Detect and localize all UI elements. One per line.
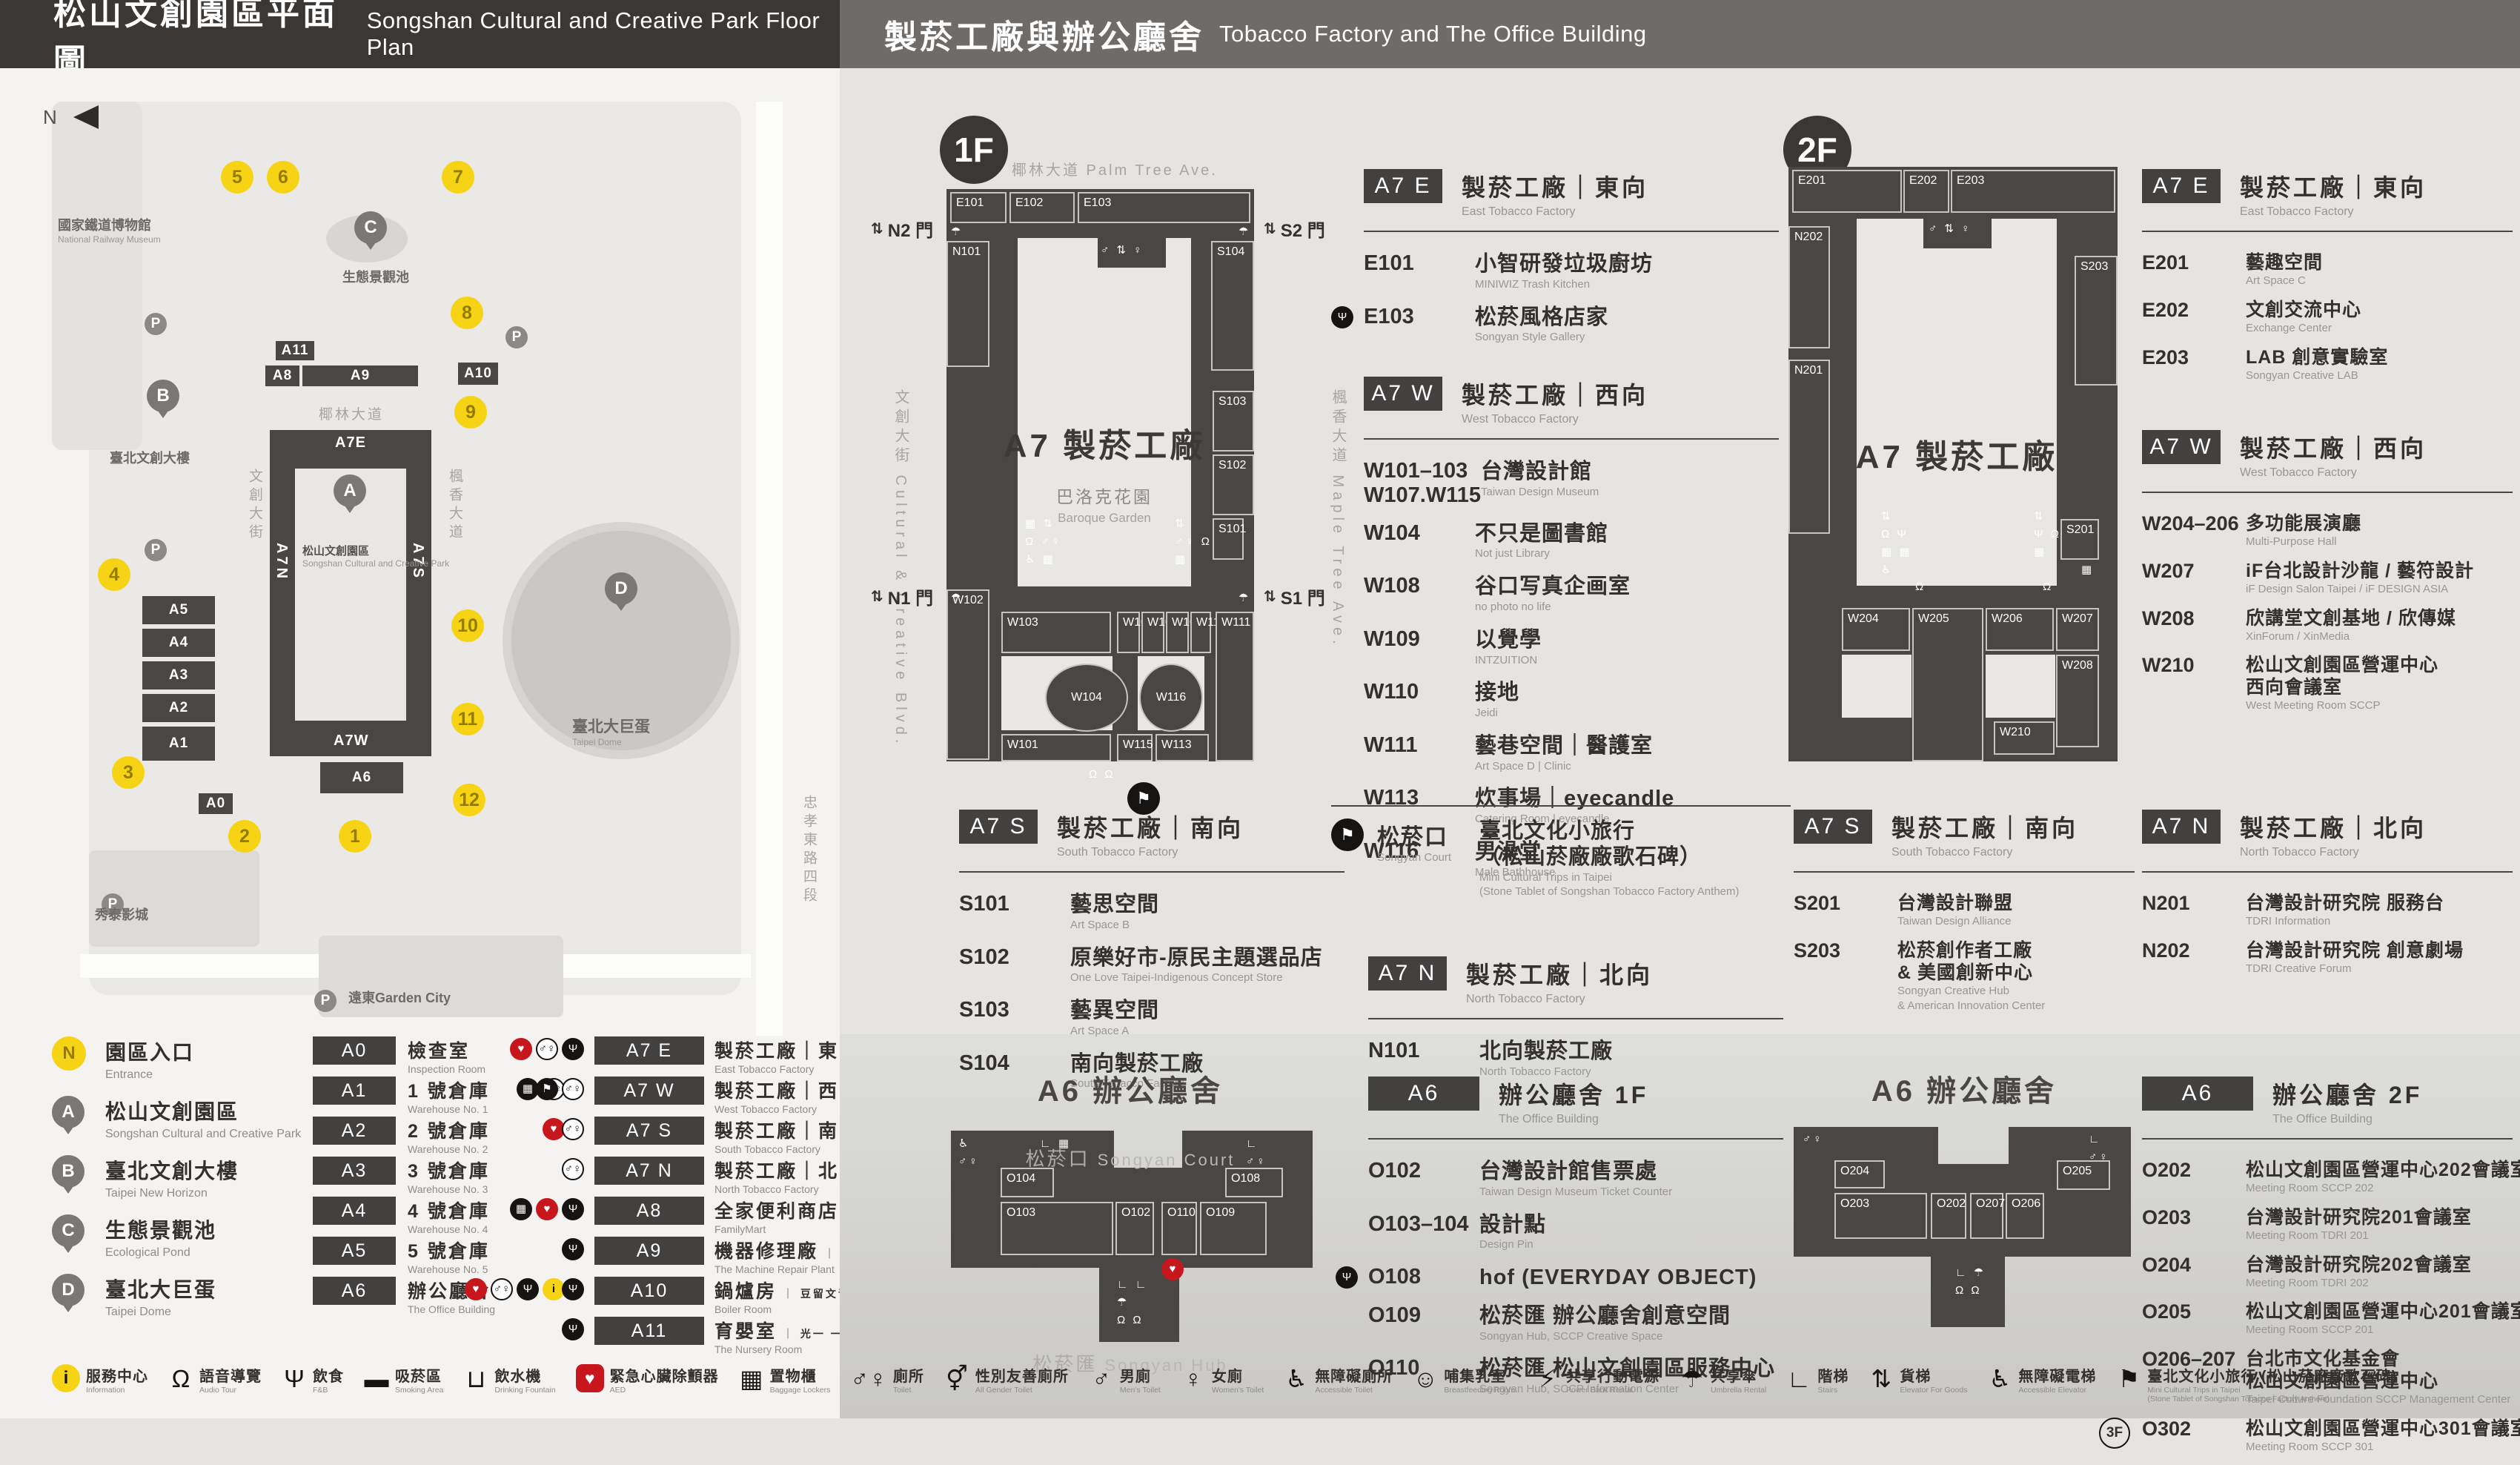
- room-code: N101: [1368, 1039, 1479, 1063]
- divider: [959, 871, 1344, 873]
- space-name: 台灣設計研究院 服務台 TDRI Information: [2246, 892, 2444, 929]
- directory-entry[interactable]: Ψ E103 松菸風格店家 Songyan Style Gallery: [1364, 305, 1779, 345]
- road-right: [756, 102, 783, 1036]
- room-code: W101–103 W107.W115: [1364, 459, 1481, 509]
- space-name: 設計點 Design Pin: [1479, 1212, 1546, 1253]
- entrance-number-marker[interactable]: 2: [228, 820, 261, 853]
- left-header: 松山文創園區平面圖 Songshan Cultural and Creative…: [0, 0, 840, 68]
- section-badge: A6: [2142, 1077, 2253, 1111]
- divider: [1368, 1138, 1783, 1140]
- entrance-number-marker[interactable]: 5: [221, 161, 253, 194]
- aed-icon: ♥: [536, 1198, 558, 1220]
- map-legend: N 園區入口Entrance A 松山文創園區Songshan Cultural…: [52, 1036, 840, 1370]
- facility-icon: Ω: [168, 1364, 193, 1394]
- map-building[interactable]: A4: [142, 629, 215, 657]
- map-pin[interactable]: C: [354, 211, 387, 244]
- facility-legend-item: ⚥ 性別友善廁所 All Gender Toilet: [944, 1364, 1069, 1395]
- divider: [2142, 492, 2513, 493]
- facility-legend-item: ⊔ 飲水機 Drinking Fountain: [463, 1364, 555, 1395]
- divider: [1331, 805, 1791, 807]
- directory-entry[interactable]: W109 以覺學 INTZUITION: [1364, 627, 1779, 668]
- map-poi-label: 國家鐵道博物館 National Railway Museum: [58, 215, 161, 245]
- row-icons: Ψ: [497, 1277, 584, 1300]
- facility-icon: ▦: [739, 1364, 764, 1394]
- directory-entry[interactable]: N202 台灣設計研究院 創意劇場 TDRI Creative Forum: [2142, 939, 2513, 976]
- restaurant-icon: Ψ: [562, 1038, 584, 1060]
- facility-legend-item: ♂ 男廁 Men's Toilet: [1089, 1364, 1161, 1395]
- directory-entry[interactable]: N201 台灣設計研究院 服務台 TDRI Information: [2142, 892, 2513, 929]
- facility-icons: ⇅ Ψ Ω ▦: [2034, 508, 2061, 561]
- plan-room[interactable]: W104: [1045, 664, 1128, 732]
- aed-icon: ♥: [465, 1278, 487, 1300]
- plan-room[interactable]: O110: [1161, 1202, 1197, 1255]
- section-badge: A7 W: [2142, 430, 2221, 464]
- room-code: E202: [2142, 299, 2246, 322]
- street-maple-ave: 楓香大道 Maple Tree Ave.: [1327, 389, 1349, 649]
- plan-room[interactable]: S102: [1213, 454, 1254, 515]
- directory-entry[interactable]: Ψ O108 hof (EVERYDAY OBJECT): [1368, 1265, 1783, 1291]
- directory-entry[interactable]: E101 小智研發垃圾廚坊 MINIWIZ Trash Kitchen: [1364, 251, 1779, 292]
- entrance-number-marker[interactable]: 8: [451, 297, 483, 329]
- legend-factory-row: ♂♀ A7 N 製菸工廠｜北向 North Tobacco Factory: [497, 1157, 840, 1193]
- space-name: 台灣設計館 Taiwan Design Museum: [1481, 459, 1599, 500]
- map-pin[interactable]: D: [605, 572, 637, 605]
- map-building[interactable]: A1: [142, 727, 215, 761]
- facility-icon: ♂♀: [850, 1364, 887, 1394]
- directory-entry[interactable]: W101–103 W107.W115 台灣設計館 Taiwan Design M…: [1364, 459, 1779, 509]
- room-code: N202: [2142, 939, 2246, 962]
- facility-legend-item: ☺ 哺集乳室 Breastfeeding Room: [1413, 1364, 1515, 1395]
- plan-room[interactable]: E203: [1951, 170, 2115, 213]
- directory-entry[interactable]: W208 欣講堂文創基地 / 欣傳媒 XinForum / XinMedia: [2142, 607, 2513, 644]
- light-patch-w206: [1986, 655, 2055, 718]
- directory-entry[interactable]: O109 松菸匯 辦公廳舍創意空間 Songyan Hub, SCCP Crea…: [1368, 1303, 1783, 1344]
- facility-icon: ⚥: [944, 1364, 969, 1394]
- plan-room[interactable]: W108: [1141, 612, 1164, 653]
- compass-north: N: [43, 105, 99, 129]
- space-name: 文創交流中心 Exchange Center: [2246, 299, 2361, 336]
- facility-icon: ♂: [1089, 1364, 1114, 1394]
- directory-entry[interactable]: S203 松菸創作者工廠 & 美國創新中心 Songyan Creative H…: [1794, 939, 2135, 1013]
- zone-badge: A0: [313, 1036, 396, 1065]
- facility-icons: ▦: [2081, 561, 2094, 579]
- park-map-panel: A7E A7W A7N A7S 松山文創園區Songshan Cultural …: [0, 68, 840, 1418]
- space-name: 台灣設計研究院 創意劇場 TDRI Creative Forum: [2246, 939, 2464, 976]
- row-icons: ♥♂♀Ψ: [497, 1036, 584, 1060]
- section-a7s-2f: A7 S 製菸工廠｜南向 South Tobacco Factory S201 …: [1794, 810, 2135, 1023]
- plan-room[interactable]: E102: [1009, 192, 1075, 223]
- facility-icon: ♿: [1987, 1364, 2012, 1394]
- facility-icons: ▦ ⇅ Ω ♂♀ ♿ ▦: [1025, 515, 1062, 569]
- legend-factory-row: ▦♥Ψ A8 全家便利商店 FamilyMart: [497, 1197, 840, 1233]
- facility-icons: ⇅ ♂♀ Ω ▦: [1175, 515, 1212, 569]
- map-poi-label: 椰林大道: [319, 403, 384, 423]
- plan-room[interactable]: W110: [1190, 612, 1211, 653]
- section-title-zh: 製菸工廠｜西向: [2240, 430, 2427, 464]
- space-name: LAB 創意實驗室 Songyan Creative LAB: [2246, 346, 2388, 383]
- facility-icons: ☂: [951, 223, 963, 241]
- space-name: 松山文創園區營運中心301會議室 Meeting Room SCCP 301: [2246, 1418, 2520, 1455]
- zone-badge: A2: [313, 1117, 396, 1145]
- plan-room[interactable]: W207: [2056, 608, 2099, 651]
- room-code: W207: [2142, 560, 2246, 583]
- plan-room[interactable]: W109: [1166, 612, 1189, 653]
- aed-icon: ♥: [510, 1038, 532, 1060]
- room-code: W204–206: [2142, 512, 2246, 535]
- space-name: 台灣設計聯盟 Taiwan Design Alliance: [1897, 892, 2013, 929]
- space-name: 藝思空間 Art Space B: [1070, 892, 1159, 933]
- zone-badge: A11: [594, 1317, 704, 1345]
- plan-room[interactable]: W113: [1155, 734, 1209, 761]
- plan-room[interactable]: W116: [1139, 664, 1203, 732]
- zone-badge: A7 E: [594, 1036, 704, 1065]
- plan-gate[interactable]: ⇅ S2 門: [1264, 216, 1325, 242]
- zone-badge: A9: [594, 1237, 704, 1265]
- plan-room[interactable]: W206: [1986, 608, 2054, 651]
- parking-icon: P: [505, 326, 528, 348]
- facility-legend-item: ▦ 置物櫃 Baggage Lockers: [739, 1364, 831, 1395]
- section-a6-2f: A6 辦公廳舍 2F The Office Building O202 松山文創…: [2142, 1077, 2513, 1465]
- plan-room[interactable]: S103: [1213, 391, 1254, 452]
- divider: [1368, 1018, 1783, 1019]
- right-title-zh: 製菸工廠與辦公廳舍: [884, 10, 1204, 58]
- legend-marker: C: [52, 1214, 86, 1247]
- section-badge: A7 E: [1364, 169, 1442, 203]
- directory-entry[interactable]: W104 不只是圖書館 Not just Library: [1364, 521, 1779, 562]
- walking-person-icon: ⚑: [1331, 819, 1364, 851]
- facility-icon: ⚡: [1535, 1364, 1560, 1394]
- room-code: E101: [1364, 251, 1475, 276]
- parking-icon: P: [314, 990, 336, 1012]
- facility-icons: Ω Ω: [1089, 766, 1115, 784]
- space-name: 北向製菸工廠 North Tobacco Factory: [1479, 1039, 1613, 1079]
- street-cultural-blvd: 文創大街 Cultural & Creative Blvd.: [890, 389, 912, 747]
- directory-entry[interactable]: W207 iF台北設計沙龍 / 藝符設計 iF Design Salon Tai…: [2142, 560, 2513, 597]
- section-title-zh: 製菸工廠｜西向: [1462, 377, 1648, 411]
- entrance-marker-icon: N: [52, 1036, 86, 1071]
- facility-icons: ♂♀: [1803, 1131, 1824, 1148]
- directory-entry[interactable]: E203 LAB 創意實驗室 Songyan Creative LAB: [2142, 346, 2513, 383]
- directory-entry[interactable]: O204 台灣設計研究院202會議室 Meeting Room TDRI 202: [2142, 1254, 2513, 1291]
- updown-arrows-icon: ⇅: [1264, 587, 1276, 606]
- facility-icon: ♀: [1181, 1364, 1206, 1394]
- legend-place-row: B 臺北文創大樓Taipei New Horizon: [52, 1155, 304, 1201]
- plan-room[interactable]: E201: [1792, 170, 1902, 213]
- plan-room[interactable]: O206: [2006, 1193, 2044, 1239]
- room-code: O103–104: [1368, 1212, 1479, 1237]
- plan-room[interactable]: S104: [1211, 241, 1254, 371]
- zone-badge: A1: [313, 1077, 396, 1105]
- plan-room[interactable]: O204: [1834, 1160, 1885, 1188]
- map-building[interactable]: A8: [265, 366, 299, 386]
- plan-room[interactable]: W111: [1216, 612, 1254, 761]
- directory-entry[interactable]: O103–104 設計點 Design Pin: [1368, 1212, 1783, 1253]
- facility-icons: ♂ ⇅ ♀: [1101, 242, 1144, 259]
- plan-room[interactable]: O104: [1001, 1168, 1054, 1197]
- plan-room[interactable]: N202: [1788, 226, 1830, 348]
- songyan-item-zh: 臺北文化小旅行: [1479, 819, 1740, 844]
- section-badge: A7 W: [1364, 377, 1442, 411]
- a6-minimap-1f: A6 辦公廳舍 松菸口Songyan Court 松菸匯Songyan Hub …: [930, 1056, 1330, 1360]
- facility-legend-item: ⚡ 共享行動電源 Power Bank Rental: [1535, 1364, 1659, 1395]
- map-pin[interactable]: B: [147, 380, 179, 412]
- restaurant-icon: Ψ: [562, 1198, 584, 1220]
- plan-room[interactable]: W103: [1001, 612, 1111, 653]
- space-name: 台灣設計研究院201會議室 Meeting Room TDRI 201: [2246, 1206, 2472, 1243]
- facility-legend-item: ♿ 無障礙廁所 Accessible Toilet: [1284, 1364, 1393, 1395]
- zone-badge: A5: [313, 1237, 396, 1265]
- facility-icons: ∟ ∟ ☂ Ω Ω: [1117, 1276, 1149, 1329]
- section-badge: A7 S: [1794, 810, 1872, 844]
- facility-legend-item: ▬ 吸菸區 Smoking Area: [364, 1364, 443, 1395]
- toilet-icon: ♂♀: [562, 1078, 584, 1100]
- directory-entry[interactable]: W210 松山文創園區營運中心 西向會議室 West Meeting Room …: [2142, 654, 2513, 713]
- space-name: 欣講堂文創基地 / 欣傳媒 XinForum / XinMedia: [2246, 607, 2456, 644]
- map-building[interactable]: A6: [320, 762, 403, 793]
- row-icons: ♂♀: [497, 1157, 584, 1180]
- plan-room[interactable]: W101: [1001, 734, 1111, 761]
- plan-room[interactable]: O203: [1834, 1193, 1927, 1239]
- zone-badge: A10: [594, 1277, 704, 1305]
- plan-room[interactable]: W208: [2056, 655, 2099, 747]
- map-building[interactable]: A3: [142, 661, 215, 689]
- railway-museum-area: [52, 102, 142, 450]
- facility-icon: ☂: [1680, 1364, 1705, 1394]
- entrance-number-marker[interactable]: 3: [112, 756, 145, 789]
- facility-icon: ⇅: [1869, 1364, 1894, 1394]
- directory-entry[interactable]: W108 谷口写真企画室 no photo no life: [1364, 574, 1779, 615]
- place-pin-icon: D: [52, 1274, 84, 1306]
- space-name: 松菸匯 辦公廳舍創意空間 Songyan Hub, SCCP Creative …: [1479, 1303, 1731, 1344]
- facility-legend-item: ⚑ 臺北文化小旅行 (松山菸廠廠歌石碑) Mini Cultural Trips…: [2116, 1364, 2397, 1403]
- plan-room[interactable]: O109: [1200, 1202, 1267, 1255]
- map-building[interactable]: A5: [142, 596, 215, 624]
- toilet-icon: ♂♀: [536, 1038, 558, 1060]
- map-pin[interactable]: A: [334, 474, 366, 507]
- plan-room[interactable]: N101: [946, 241, 989, 367]
- legend-marker: A: [52, 1096, 86, 1128]
- plan-room[interactable]: S101: [1213, 518, 1244, 560]
- plan-room[interactable]: O102: [1115, 1202, 1154, 1255]
- entrance-number-marker[interactable]: 11: [451, 703, 484, 735]
- directory-entry[interactable]: O205 松山文創園區營運中心201會議室 Meeting Room SCCP …: [2142, 1300, 2513, 1337]
- minimap-title: A6 辦公廳舍: [1038, 1067, 1223, 1110]
- map-building[interactable]: A0: [199, 793, 233, 814]
- section-title-en: East Tobacco Factory: [1462, 205, 1648, 219]
- row-icons: Ψ: [497, 1317, 584, 1340]
- section-title-en: The Office Building: [1499, 1113, 1648, 1126]
- right-title-en: Tobacco Factory and The Office Building: [1219, 21, 1647, 47]
- map-poi-label: 楓香大道: [445, 469, 465, 543]
- directory-entry[interactable]: S103 藝異空間 Art Space A: [959, 998, 1344, 1039]
- section-title-zh: 製菸工廠｜東向: [2240, 169, 2427, 203]
- zone-badge: A7 N: [594, 1157, 704, 1185]
- directory-entry[interactable]: S102 原樂好市-原民主題選品店 One Love Taipei-Indige…: [959, 945, 1344, 986]
- section-badge: A7 N: [2142, 810, 2221, 844]
- updown-arrows-icon: ⇅: [1264, 219, 1276, 238]
- map-building[interactable]: A10: [458, 363, 498, 385]
- plan-room[interactable]: S203: [2075, 256, 2118, 386]
- directory-entry[interactable]: O102 台灣設計館售票處 Taiwan Design Museum Ticke…: [1368, 1159, 1783, 1200]
- room-code: W111: [1364, 733, 1475, 758]
- floorplan-2f: A7 製菸工廠 E201 E202 E203 N202 N201 S203 S2…: [1734, 145, 2149, 797]
- facility-icons: ⇅ Ω Ψ ▦ ▦ ♿: [1881, 508, 1912, 579]
- directory-entry[interactable]: W111 藝巷空間｜醫護室 Art Space D | Clinic: [1364, 733, 1779, 774]
- facility-icon: Ψ: [282, 1364, 307, 1394]
- legend-factory-row: Ψ A11 育嬰室光一 一個時間 GUANG YI IN TIME The Nu…: [497, 1317, 840, 1353]
- entrance-number-marker[interactable]: 6: [267, 161, 299, 194]
- facility-icon: ♿: [1284, 1364, 1309, 1394]
- section-title-zh: 製菸工廠｜北向: [1466, 956, 1653, 991]
- a6-minimap-2f: A6 辦公廳舍 O204 O203 O202 O207 O206 O205 ♂♀…: [1771, 1056, 2157, 1353]
- directory-entry[interactable]: O202 松山文創園區營運中心202會議室 Meeting Room SCCP …: [2142, 1159, 2513, 1196]
- facility-icons: ∟ ▦: [1040, 1135, 1071, 1153]
- restaurant-icon: Ψ: [562, 1238, 584, 1260]
- space-name: 松山文創園區營運中心 西向會議室 West Meeting Room SCCP: [2246, 654, 2438, 713]
- facility-legend-item: ♿ 無障礙電梯 Accessible Elevator: [1987, 1364, 2096, 1395]
- map-building[interactable]: A11: [276, 341, 314, 360]
- row-icons: ⚑♂♀: [497, 1077, 584, 1100]
- plan-room[interactable]: W102: [946, 589, 989, 760]
- songyan-item-en: Mini Cultural Trips in Taipei: [1479, 871, 1740, 885]
- map-building[interactable]: A9: [302, 366, 418, 386]
- legend-marker: N: [52, 1036, 86, 1071]
- park-map: A7E A7W A7N A7S 松山文創園區Songshan Cultural …: [0, 68, 840, 1032]
- section-title-zh: 辦公廳舍 2F: [2272, 1077, 2422, 1111]
- entrance-number-marker[interactable]: 9: [454, 396, 487, 429]
- plan-room[interactable]: W204: [1842, 608, 1910, 651]
- plan-room[interactable]: S201: [2060, 519, 2099, 560]
- entrance-number-marker[interactable]: 4: [98, 558, 130, 591]
- zone-badge: A8: [594, 1197, 704, 1225]
- facility-icons: ∟ ☂ Ω Ω: [1955, 1264, 1986, 1300]
- space-name: 不只是圖書館 Not just Library: [1475, 521, 1608, 562]
- section-title-en: South Tobacco Factory: [1891, 846, 2078, 859]
- section-title-en: East Tobacco Factory: [2240, 205, 2427, 219]
- legend-factory-row: Ψ A9 機器修理廠ISLAND133 gonna' The Machine R…: [497, 1237, 840, 1273]
- section-a7n-2f: A7 N 製菸工廠｜北向 North Tobacco Factory N201 …: [2142, 810, 2513, 987]
- directory-entry[interactable]: W110 接地 Jeidi: [1364, 680, 1779, 721]
- space-name: 松菸風格店家 Songyan Style Gallery: [1475, 305, 1608, 345]
- facility-legend-item: Ω 語音導覽 Audio Tour: [168, 1364, 262, 1395]
- facility-legend-item: ♥ 緊急心臟除顫器 AED: [576, 1364, 719, 1395]
- zone-badge: A6: [313, 1277, 396, 1305]
- directory-entry[interactable]: E201 藝趣空間 Art Space C: [2142, 251, 2513, 288]
- plan-gate[interactable]: ⇅ N2 門: [871, 216, 933, 242]
- legend-factory-row: ♥♂♀Ψ A7 E 製菸工廠｜東向 East Tobacco Factory: [497, 1036, 840, 1073]
- legend-factory-row: ♂♀ A7 S 製菸工廠｜南向 South Tobacco Factory: [497, 1117, 840, 1153]
- room-code: W210: [2142, 654, 2246, 677]
- room-code: S101: [959, 892, 1070, 916]
- entry-icons: Ψ: [1336, 1266, 1358, 1289]
- plan-gate[interactable]: ⇅ N1 門: [871, 583, 933, 609]
- updown-arrows-icon: ⇅: [871, 587, 883, 606]
- ring-label-a7e: A7E: [335, 434, 366, 452]
- facility-icons: Ω: [1915, 578, 1926, 596]
- legend-place-row: D 臺北大巨蛋Taipei Dome: [52, 1274, 304, 1320]
- plan-room[interactable]: O207: [1970, 1193, 2003, 1239]
- directory-entry[interactable]: 3F O302 松山文創園區營運中心301會議室 Meeting Room SC…: [2142, 1418, 2513, 1455]
- plan-room[interactable]: W210: [1994, 721, 2055, 755]
- street-palm-tree-ave: 椰林大道 Palm Tree Ave.: [1012, 158, 1218, 179]
- section-title-en: North Tobacco Factory: [1466, 993, 1653, 1006]
- space-name: 藝趣空間 Art Space C: [2246, 251, 2323, 288]
- room-code: N201: [2142, 892, 2246, 915]
- plan-room[interactable]: W205: [1912, 608, 1983, 761]
- entrance-number-marker[interactable]: 7: [442, 161, 474, 194]
- facility-icon: ∟: [1786, 1364, 1811, 1394]
- directory-entry[interactable]: S101 藝思空間 Art Space B: [959, 892, 1344, 933]
- directory-entry[interactable]: W204–206 多功能展演廳 Multi-Purpose Hall: [2142, 512, 2513, 549]
- divider: [2142, 1138, 2513, 1140]
- walk-icon: ⚑: [536, 1078, 558, 1100]
- plan-room[interactable]: O202: [1931, 1193, 1966, 1239]
- plan-room[interactable]: N201: [1788, 360, 1830, 534]
- legend-factory-row: ⚑♂♀ A7 W 製菸工廠｜西向 West Tobacco Factory: [497, 1077, 840, 1113]
- facility-legend-item: ☂ 共享傘 Umbrella Rental: [1680, 1364, 1766, 1395]
- right-header: 製菸工廠與辦公廳舍 Tobacco Factory and The Office…: [840, 0, 2520, 68]
- zone-badge: A3: [313, 1157, 396, 1185]
- facility-icons: ♿ ♂♀: [958, 1135, 980, 1171]
- divider: [1794, 871, 2135, 873]
- directory-entry[interactable]: S201 台灣設計聯盟 Taiwan Design Alliance: [1794, 892, 2135, 929]
- section-title-zh: 辦公廳舍 1F: [1499, 1077, 1648, 1111]
- directory-entry[interactable]: E202 文創交流中心 Exchange Center: [2142, 299, 2513, 336]
- room-code: S102: [959, 945, 1070, 970]
- light-patch-w204: [1842, 655, 1911, 718]
- plan-room[interactable]: W115: [1117, 734, 1153, 761]
- facility-icons: ☂: [951, 589, 963, 607]
- parking-icon: P: [145, 313, 167, 335]
- section-title-zh: 製菸工廠｜南向: [1057, 810, 1244, 844]
- facility-icon: ♥: [576, 1364, 604, 1392]
- plan-room[interactable]: O103: [1001, 1202, 1113, 1255]
- directory-entry[interactable]: O203 台灣設計研究院201會議室 Meeting Room TDRI 201: [2142, 1206, 2513, 1243]
- legend-place-row: A 松山文創園區Songshan Cultural and Creative P…: [52, 1096, 304, 1142]
- entrance-number-marker[interactable]: 1: [339, 820, 371, 853]
- map-building[interactable]: A2: [142, 694, 215, 722]
- room-code: W113: [1364, 786, 1475, 810]
- aed-icon: ♥: [1161, 1258, 1184, 1280]
- plan-room[interactable]: W107: [1117, 612, 1140, 653]
- facility-icons: ∟ ♂♀: [1246, 1135, 1267, 1171]
- restaurant-icon: Ψ: [562, 1318, 584, 1340]
- facility-legend-item: i 服務中心 Information: [52, 1364, 148, 1395]
- room-code: O109: [1368, 1303, 1479, 1328]
- floorplan-1f: 椰林大道 Palm Tree Ave. 文創大街 Cultural & Crea…: [878, 145, 1353, 797]
- plan-room[interactable]: E103: [1078, 192, 1250, 223]
- room-code: W104: [1364, 521, 1475, 546]
- entrance-number-marker[interactable]: 12: [453, 784, 485, 816]
- section-title-en: West Tobacco Factory: [2240, 466, 2427, 480]
- plan-room[interactable]: O108: [1225, 1168, 1283, 1197]
- section-title-zh: 製菸工廠｜北向: [2240, 810, 2427, 844]
- directory-entry[interactable]: N101 北向製菸工廠 North Tobacco Factory: [1368, 1039, 1783, 1079]
- entrance-number-marker[interactable]: 10: [451, 609, 484, 642]
- section-title-en: West Tobacco Factory: [1462, 413, 1648, 426]
- space-name: 多功能展演廳 Multi-Purpose Hall: [2246, 512, 2361, 549]
- court-poi: 松山文創園區Songshan Cultural and Creative Par…: [302, 543, 399, 569]
- plan-room[interactable]: E202: [1903, 170, 1949, 213]
- plan-gate[interactable]: ⇅ S1 門: [1264, 583, 1325, 609]
- plan-room[interactable]: E101: [950, 192, 1007, 223]
- plan-center-label: A7 製菸工廠: [1856, 430, 2058, 477]
- map-poi-label: 忠孝東路四段: [799, 795, 819, 906]
- legend-place-row: C 生態景觀池Ecological Pond: [52, 1214, 304, 1260]
- facility-legend-item: Ψ 飲食 F&B: [282, 1364, 344, 1395]
- facility-icons: ☂: [1239, 589, 1250, 607]
- room-code: S203: [1794, 939, 1897, 962]
